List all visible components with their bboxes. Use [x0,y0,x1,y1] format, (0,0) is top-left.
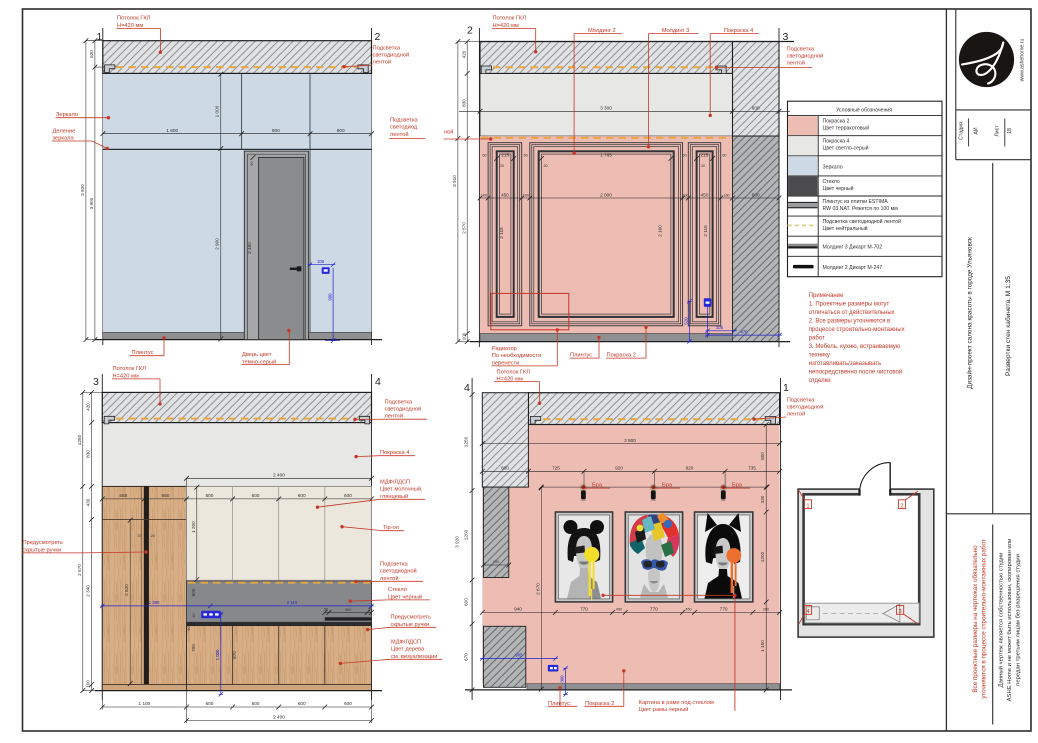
svg-text:1 000: 1 000 [215,649,220,660]
svg-text:уточняются в процессе строител: уточняются в процессе строительно-монтаж… [980,539,988,699]
svg-text:светодиодной: светодиодной [787,52,824,59]
svg-text:900: 900 [327,293,332,301]
svg-text:1 200: 1 200 [191,521,196,533]
svg-text:светодиодной: светодиодной [385,406,422,413]
svg-text:2 400: 2 400 [273,473,285,478]
svg-text:4: 4 [375,376,381,388]
svg-text:2 115: 2 115 [703,225,708,237]
svg-text:940: 940 [514,607,522,612]
svg-text:1: 1 [783,382,789,394]
svg-text:АИ: АИ [974,127,980,134]
svg-text:1 100: 1 100 [139,701,151,706]
svg-text:830: 830 [461,99,466,107]
svg-text:лентой: лентой [390,131,409,138]
svg-text:Цвет терракотовый: Цвет терракотовый [823,125,870,132]
svg-text:600: 600 [501,466,509,471]
svg-text:Цвет черный: Цвет черный [388,593,422,600]
svg-text:ASHE Home и не может быть испо: ASHE Home и не может быть использован, с… [1007,539,1013,702]
svg-text:905: 905 [515,653,523,658]
svg-text:300: 300 [560,675,565,683]
svg-text:60: 60 [683,154,687,158]
svg-text:770: 770 [580,607,588,612]
svg-text:Подсветка: Подсветка [373,46,401,52]
svg-text:4: 4 [464,382,470,394]
svg-text:420: 420 [86,403,91,411]
svg-text:100: 100 [682,193,688,197]
svg-text:215: 215 [700,153,708,158]
svg-text:Цвет светло-серый: Цвет светло-серый [823,145,869,152]
svg-text:Потолок ГКЛ: Потолок ГКЛ [493,16,527,22]
svg-text:отделки: отделки [809,378,831,384]
svg-text:лентой: лентой [380,575,399,582]
svg-text:100: 100 [481,193,487,197]
svg-text:18: 18 [1007,128,1013,134]
svg-text:920: 920 [615,466,623,471]
svg-text:Потолок ГКЛ: Потолок ГКЛ [113,366,147,372]
svg-text:МДФ/ЛДСП: МДФ/ЛДСП [380,480,410,486]
svg-text:500: 500 [345,608,351,612]
svg-text:1 800: 1 800 [166,128,178,133]
svg-text:20: 20 [138,534,142,538]
svg-text:60: 60 [524,154,528,158]
svg-text:Подсветка: Подсветка [385,400,413,406]
svg-text:технику: технику [809,353,830,359]
svg-text:ной: ной [444,128,453,135]
svg-text:2 115: 2 115 [499,227,504,239]
svg-text:105: 105 [716,325,724,330]
svg-text:отличаться от действительных: отличаться от действительных [809,309,895,316]
svg-text:20: 20 [151,534,155,538]
svg-text:20: 20 [701,164,705,168]
svg-text:Все проектные размеры на черте: Все проектные размеры на чертежах обязат… [971,545,979,693]
svg-text:Картина в раме под стеклом: Картина в раме под стеклом [639,700,714,706]
svg-text:60: 60 [250,161,254,165]
svg-text:550: 550 [119,493,127,498]
svg-text:Дизайн-проект салона красоты в: Дизайн-проект салона красоты в городе Ул… [966,237,974,389]
svg-text:2 570: 2 570 [77,564,82,576]
svg-text:20: 20 [543,164,547,168]
svg-text:3 920: 3 920 [80,184,85,196]
svg-text:лентой: лентой [385,413,404,420]
svg-text:2 110: 2 110 [287,600,298,605]
svg-text:Деление: Деление [53,128,76,134]
svg-text:Покраска 4: Покраска 4 [823,139,850,145]
svg-text:Плинтус из плитки ESTIMA: Плинтус из плитки ESTIMA [823,199,889,205]
svg-text:2 000: 2 000 [600,192,612,197]
svg-text:100: 100 [86,680,91,688]
svg-text:215: 215 [501,153,509,158]
svg-text:3 300: 3 300 [600,106,612,111]
svg-text:Стекло: Стекло [823,179,840,185]
svg-text:3: 3 [93,376,99,388]
svg-text:1. Проектные размеры могут: 1. Проектные размеры могут [809,302,890,308]
svg-text:150: 150 [493,560,499,564]
svg-text:2: 2 [375,31,381,43]
svg-text:2. Все размеры уточняются в: 2. Все размеры уточняются в [809,319,891,325]
svg-text:1250: 1250 [77,434,82,445]
svg-text:180: 180 [723,193,729,197]
svg-text:1200: 1200 [760,551,765,562]
svg-text:600: 600 [344,493,352,498]
svg-text:2 460: 2 460 [247,242,252,254]
svg-text:1: 1 [97,31,103,43]
svg-text:процессе строительно-монтажных: процессе строительно-монтажных [809,327,905,333]
svg-text:600: 600 [752,106,760,111]
svg-text:50: 50 [368,608,372,612]
svg-text:Зеркало: Зеркало [823,164,843,170]
svg-text:Молдинг 3: Молдинг 3 [662,28,690,34]
svg-text:770: 770 [720,607,728,612]
svg-text:900: 900 [272,128,280,133]
svg-text:60: 60 [482,154,486,158]
svg-text:2 620: 2 620 [124,584,129,596]
svg-text:1 150: 1 150 [760,640,765,652]
svg-text:735: 735 [748,466,756,471]
svg-text:2 160: 2 160 [658,225,663,237]
svg-text:1 000: 1 000 [215,105,220,117]
svg-text:работ: работ [809,336,825,342]
svg-text:100: 100 [461,332,466,340]
svg-text:Радиатор: Радиатор [492,346,517,352]
svg-text:Молдинг 3 Дикарт М-702: Молдинг 3 Дикарт М-702 [823,245,883,251]
svg-text:Дверь цвет: Дверь цвет [242,352,272,358]
svg-text:600: 600 [298,493,306,498]
svg-text:60: 60 [722,154,726,158]
svg-text:Предусмотреть: Предусмотреть [391,615,432,621]
svg-text:Предусмотреть: Предусмотреть [23,540,64,546]
svg-text:870: 870 [232,651,237,659]
svg-text:лентой: лентой [787,60,806,67]
svg-text:420: 420 [461,50,466,58]
svg-text:920: 920 [686,466,694,471]
svg-text:725: 725 [552,466,560,471]
svg-text:Стадия: Стадия [959,122,965,140]
svg-text:изготавливать/заказывать: изготавливать/заказывать [809,361,882,367]
svg-text:Цвет нейтральный: Цвет нейтральный [823,225,868,232]
svg-text:3: 3 [899,609,902,615]
svg-text:Молдинг 2: Молдинг 2 [588,28,616,34]
svg-text:470: 470 [740,329,748,334]
svg-text:www.ashehome.ru: www.ashehome.ru [1020,39,1026,82]
svg-text:Подсветка светодиодной лентой: Подсветка светодиодной лентой [823,218,901,225]
svg-text:Потолок ГКЛ: Потолок ГКЛ [117,16,151,22]
svg-text:Подсветка: Подсветка [390,118,418,124]
svg-text:600: 600 [206,701,214,706]
svg-text:Данный чертеж является собстве: Данный чертеж является собственностью ст… [998,553,1005,688]
svg-text:600: 600 [191,588,196,596]
svg-text:Молдинг 2 Дикарт М-247: Молдинг 2 Дикарт М-247 [823,265,883,271]
svg-text:Покраска 2: Покраска 2 [823,119,850,125]
svg-text:лентой: лентой [373,59,392,66]
svg-text:передан третьим лицам без разр: передан третьим лицам без разрешения сту… [1016,554,1022,686]
svg-text:RW 03.NAT. Режется по 100 мм: RW 03.NAT. Режется по 100 мм [823,206,899,212]
svg-text:430: 430 [86,498,91,506]
svg-text:770: 770 [650,607,658,612]
svg-text:1200: 1200 [463,529,468,540]
svg-text:3 900: 3 900 [89,197,94,209]
svg-text:Подсветка: Подсветка [380,562,408,568]
svg-text:непосредственно после чистовой: непосредственно после чистовой [809,369,903,376]
svg-text:светодиодной: светодиодной [787,403,824,410]
svg-text:По необходимости: По необходимости [492,353,541,359]
svg-text:светодиодной: светодиодной [380,568,417,575]
svg-text:50: 50 [324,608,328,612]
svg-text:600: 600 [252,701,260,706]
svg-text:Условные обозначения: Условные обозначения [836,107,892,113]
svg-text:3 900: 3 900 [624,438,636,443]
svg-text:Подсветка: Подсветка [787,397,815,403]
svg-text:светодиодной: светодиодной [373,52,410,59]
svg-text:520: 520 [683,317,688,325]
svg-text:2 670: 2 670 [535,583,540,595]
svg-text:670: 670 [463,653,468,661]
svg-text:Цвет черный: Цвет черный [823,185,854,192]
svg-text:830: 830 [86,450,91,458]
svg-text:Развертки стен кабинета, М 1:3: Развертки стен кабинета, М 1:35 [1004,276,1012,376]
svg-text:4: 4 [806,609,809,615]
svg-text:2 340: 2 340 [86,585,91,597]
svg-text:320: 320 [760,495,765,503]
svg-text:1250: 1250 [463,436,468,447]
svg-text:светодиод: светодиод [390,125,418,131]
svg-text:2 400: 2 400 [273,715,285,720]
svg-text:2: 2 [467,25,473,37]
svg-text:Цвет рамы черный: Цвет рамы черный [639,706,689,713]
svg-text:лентой: лентой [787,411,806,418]
svg-text:700: 700 [191,644,196,652]
svg-text:2 570: 2 570 [461,222,466,234]
svg-text:2: 2 [900,503,903,509]
svg-text:3 910: 3 910 [452,175,457,187]
svg-text:Подсветка: Подсветка [787,46,815,52]
svg-text:450: 450 [616,608,622,612]
svg-text:Стекло: Стекло [388,587,407,593]
svg-text:600: 600 [206,493,214,498]
svg-text:450: 450 [701,192,709,197]
svg-text:800: 800 [760,452,765,460]
svg-text:600: 600 [463,598,468,606]
svg-text:40: 40 [192,613,196,617]
svg-text:450: 450 [685,608,691,612]
svg-text:620: 620 [89,50,94,58]
svg-text:100: 100 [317,259,325,264]
svg-text:МДФ/ЛДСП: МДФ/ЛДСП [391,640,421,646]
svg-text:600: 600 [752,192,760,197]
svg-text:Примечание: Примечание [809,293,844,299]
svg-text:600: 600 [344,701,352,706]
svg-text:1 765: 1 765 [600,153,612,158]
svg-text:1 390: 1 390 [149,600,160,605]
svg-text:20: 20 [500,164,504,168]
svg-text:2 900: 2 900 [215,238,220,250]
svg-text:1: 1 [806,503,809,509]
svg-text:Цвет молочный,: Цвет молочный, [380,486,423,493]
svg-text:450: 450 [501,192,509,197]
svg-text:600: 600 [298,701,306,706]
svg-text:Лист: Лист [995,125,1001,137]
svg-text:3 920: 3 920 [455,536,460,548]
svg-text:глянцевый: глянцевый [380,493,408,500]
svg-text:20: 20 [187,626,191,630]
svg-text:800: 800 [337,128,345,133]
svg-text:3. Мебель, кухню, встраиваемую: 3. Мебель, кухню, встраиваемую [809,344,901,350]
svg-text:Цвет дерева: Цвет дерева [391,647,425,653]
svg-text:550: 550 [161,493,169,498]
svg-text:Потолок ГКЛ: Потолок ГКЛ [497,370,531,376]
svg-text:100: 100 [523,193,529,197]
svg-text:600: 600 [252,493,260,498]
